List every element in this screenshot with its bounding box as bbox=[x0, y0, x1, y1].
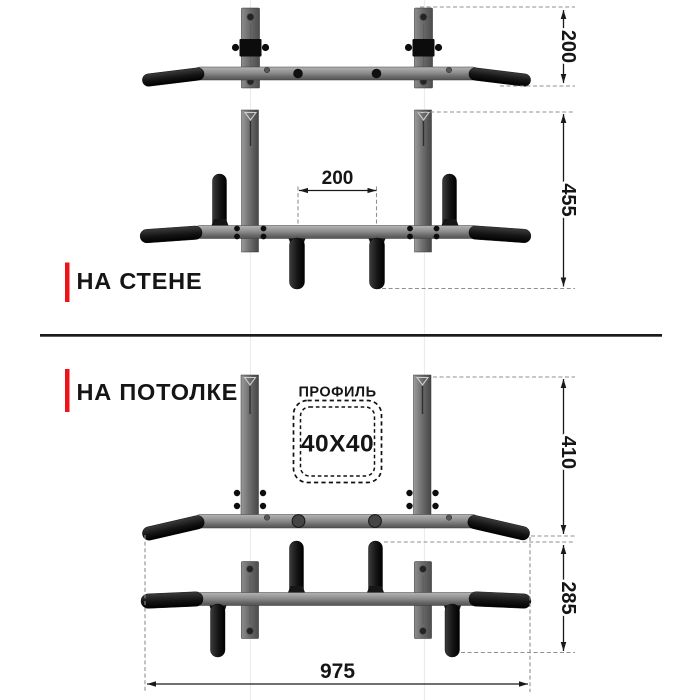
wall-mount-front-view bbox=[140, 110, 532, 289]
wall-section-label: НА СТЕНЕ bbox=[77, 268, 203, 294]
profile-value: 40X40 bbox=[301, 431, 374, 458]
end-grip bbox=[469, 591, 532, 608]
dimension-label-ceiling-height: 410 bbox=[557, 436, 579, 469]
dimension-label-frame-height: 285 bbox=[557, 581, 579, 614]
profile-callout: ПРОФИЛЬ 40X40 bbox=[294, 385, 382, 483]
vertical-grip-up bbox=[212, 174, 229, 233]
ceiling-post bbox=[406, 375, 438, 518]
clamp-block bbox=[405, 39, 442, 57]
vertical-grip-down bbox=[369, 238, 386, 289]
end-grip bbox=[142, 67, 205, 87]
accent-bar bbox=[65, 263, 70, 303]
vertical-grip-down bbox=[210, 604, 227, 657]
ceiling-post bbox=[234, 375, 266, 518]
vertical-grip-up bbox=[367, 541, 384, 598]
dimension-overall-width: 975 bbox=[145, 535, 530, 692]
pullup-bar-diagram: 200 bbox=[0, 0, 700, 700]
end-grip bbox=[140, 226, 203, 244]
end-grip bbox=[469, 225, 532, 243]
ceiling-section-label: НА ПОТОЛКЕ bbox=[77, 379, 239, 405]
end-grip bbox=[141, 591, 204, 608]
ceiling-section-header: НА ПОТОЛКЕ bbox=[65, 369, 238, 412]
wall-section-header: НА СТЕНЕ bbox=[65, 263, 202, 303]
dimension-label-overall-width: 975 bbox=[320, 660, 355, 683]
end-grip bbox=[467, 514, 531, 541]
profile-title: ПРОФИЛЬ bbox=[298, 385, 376, 401]
dimension-label-wall-height: 455 bbox=[557, 183, 579, 216]
crossbar-tube bbox=[194, 593, 479, 606]
ceiling-mount-view bbox=[141, 375, 532, 657]
dimension-label-grip-spacing: 200 bbox=[322, 168, 354, 189]
dimension-ceiling-height: 410 bbox=[433, 377, 579, 536]
accent-bar bbox=[65, 369, 70, 412]
dimension-label-bracket-height: 200 bbox=[557, 30, 579, 63]
vertical-grip-up bbox=[288, 541, 305, 598]
section-divider bbox=[40, 334, 662, 337]
wall-mount-top-view bbox=[142, 8, 532, 88]
clamp-block bbox=[232, 39, 269, 57]
end-grip bbox=[468, 67, 531, 87]
crossbar-tube bbox=[194, 515, 479, 529]
vertical-grip-down bbox=[444, 604, 461, 657]
end-grip bbox=[141, 514, 205, 541]
vertical-grip-up bbox=[442, 174, 459, 233]
crossbar-tube bbox=[194, 67, 479, 80]
dimension-wall-height: 455 bbox=[382, 112, 579, 289]
vertical-grip-down bbox=[289, 238, 306, 289]
dimension-grip-spacing: 200 bbox=[298, 168, 377, 226]
diagram-page: 200 bbox=[0, 0, 700, 700]
